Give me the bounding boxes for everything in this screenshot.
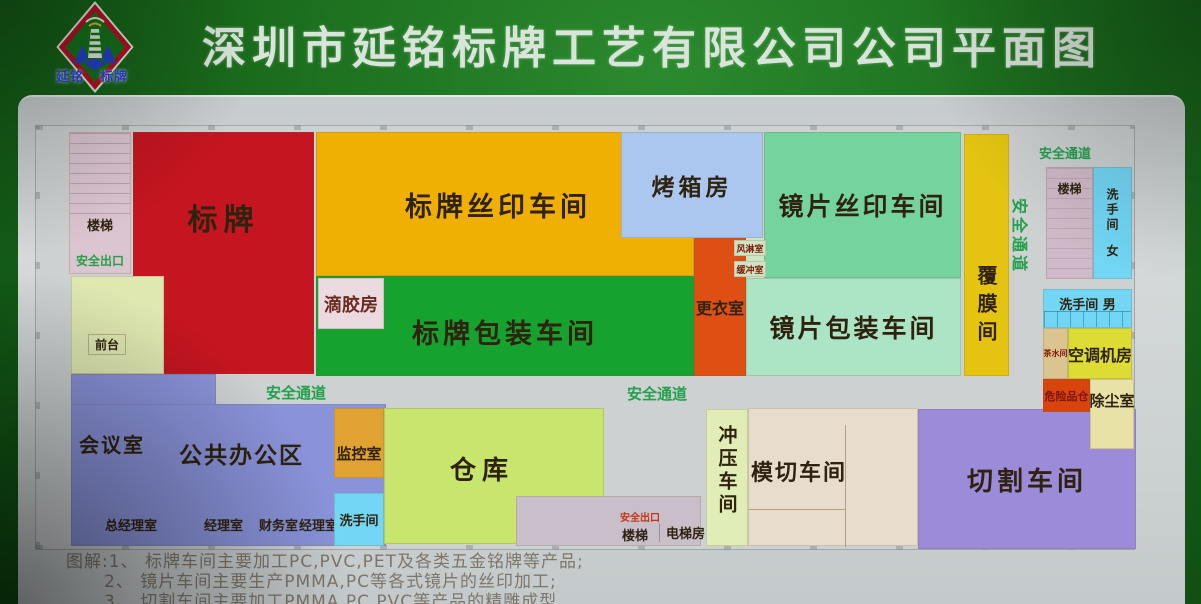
plan-border-ticks-top: [36, 125, 1134, 130]
label-sign-packaging: 标牌包装车间: [412, 312, 598, 351]
logo-text-right: 标牌: [100, 66, 128, 85]
stairs-hatch: [70, 133, 130, 220]
room-air-shower: 风淋室: [734, 240, 766, 256]
corridor-label-top-right: 安全通道: [1029, 143, 1101, 162]
room-glue-dispensing: 滴胶房: [318, 278, 384, 329]
label-front-desk: 前台: [88, 334, 126, 355]
label-stairs-left: 楼梯: [87, 215, 113, 234]
legend-line-2: 2、 镜片车间主要生产PMMA,PC等各式镜片的丝印加工;: [66, 572, 584, 592]
label-lens-packaging: 镜片包装车间: [769, 309, 937, 345]
label-manager-office-1: 经理室: [196, 515, 251, 534]
label-oven: 烤箱房: [652, 168, 733, 202]
label-ac: 空调机房: [1068, 342, 1132, 366]
label-dust: 除尘室: [1090, 390, 1135, 411]
room-changing: 更衣室: [694, 238, 746, 376]
poster-photo: 延铭 标牌 深圳市延铭标牌工艺有限公司公司平面图 标牌丝印车间 标牌 前台 楼梯…: [0, 0, 1201, 604]
room-ac: 空调机房: [1068, 328, 1132, 379]
room-meeting-ext: [71, 374, 216, 406]
room-toilet-men: 洗手间 男: [1043, 289, 1132, 328]
label-lens-silkscreen: 镜片丝印车间: [778, 187, 946, 223]
label-women: 女: [1106, 242, 1118, 259]
room-monitor: 监控室: [334, 408, 384, 478]
room-punch-workshop: 冲压车间: [706, 409, 748, 546]
room-lens-packaging: 镜片包装车间: [746, 278, 961, 376]
label-warehouse: 仓库: [450, 450, 514, 487]
label-punch-workshop: 冲压车间: [714, 425, 741, 517]
label-meeting-room: 会议室: [79, 429, 145, 458]
logo-text-left: 延铭: [56, 66, 84, 85]
label-stairs-right: 楼梯: [1057, 180, 1081, 197]
legend: 图解:1、 标牌车间主要加工PC,PVC,PET及各类五金铭牌等产品; 2、 镜…: [66, 552, 584, 604]
toilet-stalls: [1044, 311, 1131, 327]
legend-line-3: 3、 切割车间主要加工PMMA,PC,PVC等产品的精雕成型: [66, 592, 584, 604]
room-stairs-right: 楼梯: [1046, 167, 1093, 279]
label-monitor: 监控室: [336, 443, 381, 464]
legend-line-1: 图解:1、 标牌车间主要加工PC,PVC,PET及各类五金铭牌等产品;: [66, 552, 584, 572]
company-logo: 延铭 标牌: [52, 0, 138, 96]
room-dust: 除尘室: [1090, 379, 1134, 449]
label-hazmat: 危险品仓: [1045, 388, 1089, 404]
label-buffer: 缓冲室: [736, 263, 763, 276]
floor-plan: 标牌丝印车间 标牌 前台 楼梯 安全出口 烤箱房 镜片丝印车间 覆膜间 标牌包装…: [35, 125, 1135, 550]
label-film-lamination: 覆膜间: [972, 265, 1001, 349]
label-cutting-workshop: 切割车间: [967, 461, 1087, 498]
label-safety-exit-left: 安全出口: [76, 252, 124, 269]
label-tea: 茶水间: [1044, 348, 1068, 359]
room-lens-silkscreen: 镜片丝印车间: [764, 132, 961, 278]
room-hazmat: 危险品仓: [1043, 379, 1090, 412]
room-toilet-women: 洗手间 女: [1093, 167, 1132, 279]
label-die-cut: 模切车间: [751, 455, 847, 487]
label-changing: 更衣室: [696, 295, 744, 319]
label-open-office: 公共办公区: [179, 436, 295, 470]
corridor-label-mid-right: 安全通道: [612, 383, 702, 404]
label-elevator-room: 电梯房: [659, 523, 705, 542]
label-air-shower: 风淋室: [736, 242, 763, 255]
plan-border-ticks-left: [35, 126, 40, 549]
room-stairs-elevator: 安全出口 楼梯 电梯房: [516, 496, 701, 546]
label-gm-office: 总经理室: [91, 515, 171, 534]
page-title: 深圳市延铭标牌工艺有限公司公司平面图: [182, 12, 1122, 76]
inner-wall: [749, 509, 845, 510]
room-front-desk: 前台: [71, 276, 164, 374]
inner-wall: [845, 425, 846, 547]
room-toilet-small: 洗手间: [334, 493, 384, 546]
room-tea: 茶水间: [1043, 328, 1068, 379]
room-oven: 烤箱房: [621, 132, 763, 238]
room-buffer: 缓冲室: [734, 261, 766, 277]
label-toilet-small: 洗手间: [339, 510, 378, 529]
corridor-vertical-text: 安全通道: [1009, 198, 1033, 274]
corridor-label-vertical: 安全通道: [999, 166, 1043, 306]
label-sign-silkscreen: 标牌丝印车间: [405, 185, 591, 224]
label-stairs-mid: 楼梯: [622, 525, 648, 544]
label-toilet-women: 洗手间: [1104, 188, 1121, 233]
label-glue-dispensing: 滴胶房: [324, 291, 378, 317]
label-safety-exit-mid: 安全出口: [620, 509, 660, 524]
room-stairs-left: 楼梯 安全出口: [69, 132, 131, 274]
room-die-cut-workshop: 模切车间: [748, 408, 918, 546]
corridor-label-mid-left: 安全通道: [251, 382, 341, 403]
label-sign: 标牌: [188, 195, 260, 239]
